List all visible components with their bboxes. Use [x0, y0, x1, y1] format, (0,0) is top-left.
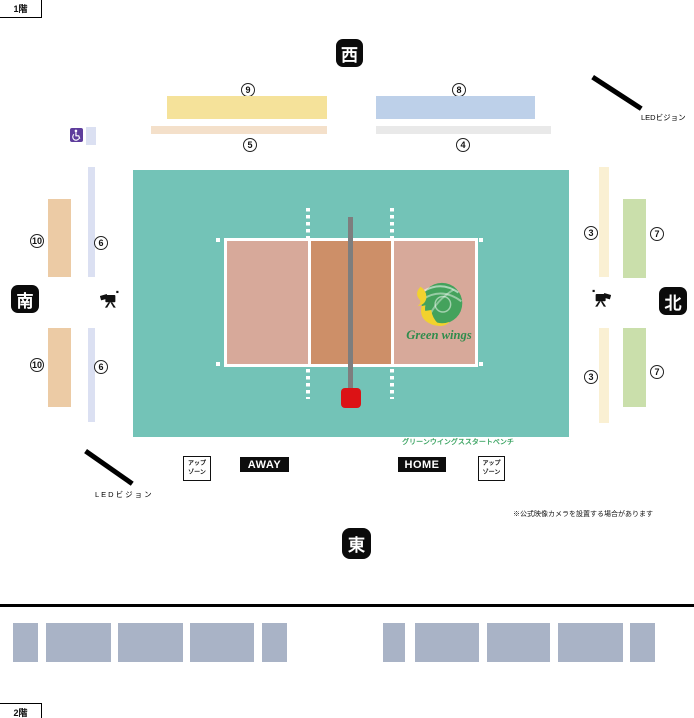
led-vision-screen-top — [591, 75, 642, 111]
section-4-seats — [376, 126, 551, 134]
referee-stand — [341, 388, 361, 408]
section-3-label-bottom: 3 — [584, 370, 598, 384]
wheelchair-companion-seat — [86, 127, 96, 145]
led-vision-label-bottom: LEDビジョン — [95, 489, 154, 500]
court-corner-tick — [216, 238, 220, 242]
court-corner-tick — [216, 362, 220, 366]
section-10-seats-top — [48, 199, 71, 277]
up-zone-away: アップ ゾーン — [183, 456, 211, 481]
floor2-seat-block — [118, 623, 183, 662]
compass-south: 南 — [11, 285, 39, 313]
up-zone-home: アップ ゾーン — [478, 456, 505, 481]
court-floor: Green wings — [133, 170, 569, 437]
section-8-label: 8 — [452, 83, 466, 97]
floor2-seat-block — [630, 623, 655, 662]
team-logo: Green wings — [404, 279, 474, 345]
section-10-label-top: 10 — [30, 234, 44, 248]
section-7-seats-bottom — [623, 328, 646, 407]
compass-west: 西 — [336, 39, 363, 67]
section-6-seats-top — [88, 167, 96, 277]
up-zone-text: ゾーン — [188, 469, 206, 478]
section-9-seats — [167, 96, 327, 119]
section-7-seats-top — [623, 199, 646, 278]
floor-divider-line — [0, 604, 694, 607]
home-bench: HOME — [398, 457, 446, 472]
away-bench: AWAY — [240, 457, 289, 472]
official-camera-note: ※公式映像カメラを設置する場合があります — [513, 509, 653, 519]
floor2-seat-block — [13, 623, 38, 662]
section-7-label-bottom: 7 — [650, 365, 664, 379]
section-3-seats-bottom — [599, 328, 609, 423]
floor2-seat-block — [46, 623, 111, 662]
compass-north: 北 — [659, 287, 687, 315]
camera-icon-north — [592, 289, 612, 308]
section-10-label-bottom: 10 — [30, 358, 44, 372]
floor2-seat-block — [262, 623, 287, 662]
section-7-label-top: 7 — [650, 227, 664, 241]
net-line — [348, 217, 353, 390]
arena-seating-map: 1階 西 南 北 東 9 8 5 4 LEDビジョン 6 6 10 10 3 3… — [0, 0, 694, 718]
section-10-seats-bottom — [48, 328, 71, 407]
floor2-seat-block — [487, 623, 550, 662]
floor2-seat-block — [383, 623, 405, 662]
led-vision-label-top: LEDビジョン — [641, 112, 686, 123]
court-corner-tick — [479, 362, 483, 366]
up-zone-text: ゾーン — [483, 469, 501, 478]
team-name-text: Green wings — [406, 328, 472, 342]
up-zone-text: アップ — [482, 460, 500, 469]
floor1-label: 1階 — [0, 0, 42, 18]
attack-line-dashes — [390, 369, 394, 399]
section-6-seats-bottom — [88, 328, 96, 422]
floor2-seat-block — [415, 623, 479, 662]
court-zone-left — [227, 241, 308, 364]
wheelchair-icon — [70, 128, 83, 142]
attack-line-dashes — [390, 208, 394, 238]
compass-east: 東 — [342, 528, 371, 559]
led-vision-screen-bottom — [84, 449, 134, 486]
section-9-label: 9 — [241, 83, 255, 97]
floor2-seat-block — [558, 623, 623, 662]
section-8-seats — [376, 96, 535, 119]
attack-line-dashes — [306, 208, 310, 238]
floor2-seat-block — [190, 623, 254, 662]
camera-icon-south — [99, 290, 119, 309]
attack-line-dashes — [306, 369, 310, 399]
section-3-seats-top — [599, 167, 609, 277]
section-4-label: 4 — [456, 138, 470, 152]
up-zone-text: アップ — [188, 460, 206, 469]
court-corner-tick — [479, 238, 483, 242]
section-6-label-top: 6 — [94, 236, 108, 250]
section-6-label-bottom: 6 — [94, 360, 108, 374]
section-5-seats — [151, 126, 327, 134]
section-3-label-top: 3 — [584, 226, 598, 240]
home-bench-label: グリーンウイングススタートベンチ — [396, 437, 520, 447]
section-5-label: 5 — [243, 138, 257, 152]
floor2-label: 2階 — [0, 703, 42, 718]
